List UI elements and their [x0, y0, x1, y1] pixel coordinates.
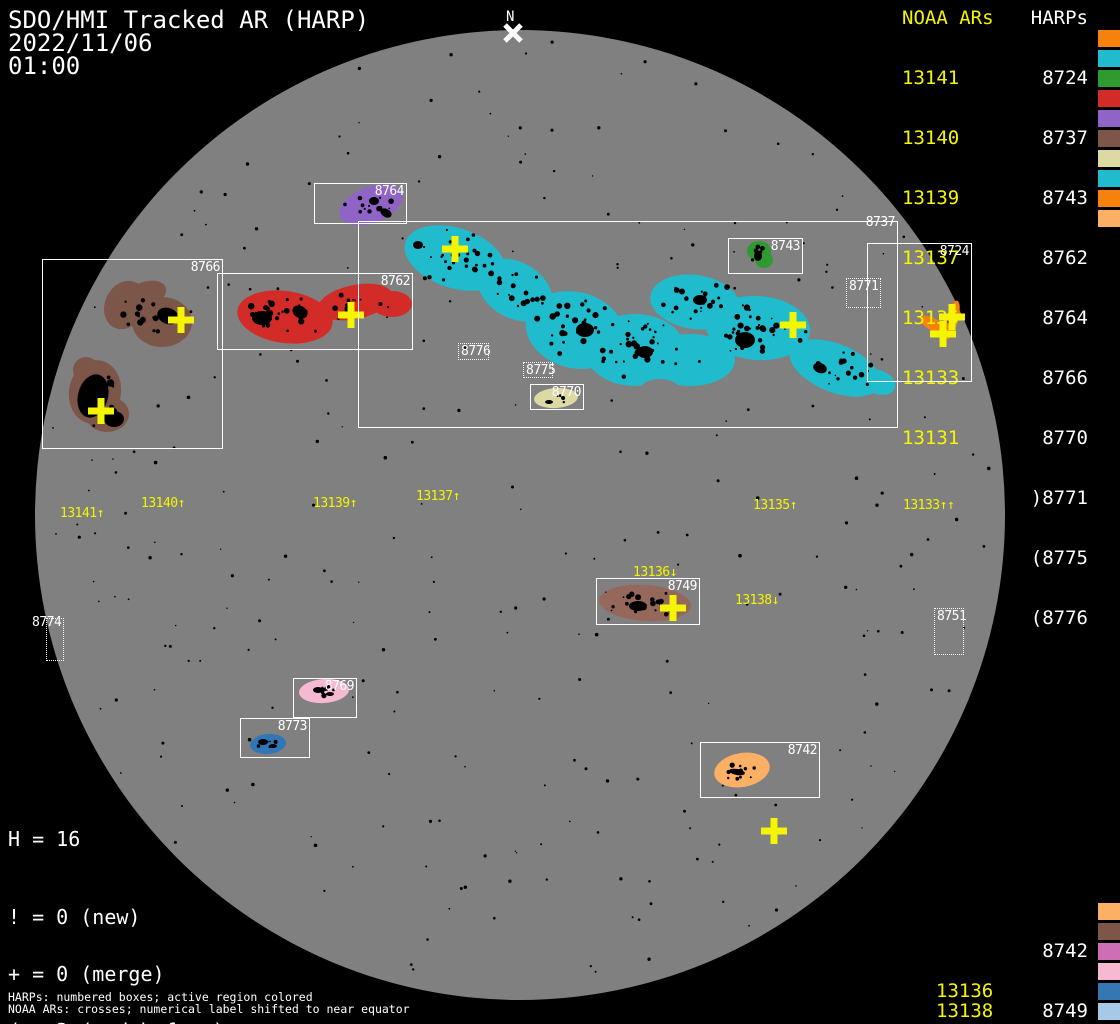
harp-box-8769: 8769: [293, 678, 357, 718]
harp-color-swatch: [1098, 983, 1120, 1000]
harp-color-swatch: [1098, 943, 1120, 960]
noaa-ar-number: 13138: [936, 1001, 993, 1021]
harp-box-8742: 8742: [700, 742, 820, 798]
harp-color-swatch: [1098, 210, 1120, 227]
noaa-disk-label: 13140↑: [141, 497, 185, 510]
harp-box-label: 8776: [461, 345, 490, 358]
solar-disk: [35, 30, 1005, 1000]
harp-box-8751: 8751: [934, 608, 964, 655]
harp-color-swatch: [1098, 50, 1120, 67]
harp-box-label: 8773: [278, 720, 307, 733]
harp-number: 8737: [968, 128, 1088, 148]
harp-box-8775: 8775: [523, 362, 553, 378]
harp-box-8766: 8766: [42, 259, 223, 449]
harp-box-label: 8751: [937, 610, 966, 623]
harp-count: H = 16: [8, 830, 80, 849]
noaa-ar-number: 13136: [936, 981, 993, 1001]
harp-box-label: 8770: [552, 386, 581, 399]
harp-tracking-visualization: SDO/HMI Tracked AR (HARP) 2022/11/06 01:…: [0, 0, 1120, 1024]
harp-list-top: 8724 8737 8743 8762 8764 8766 8770 )8771…: [968, 28, 1088, 668]
harp-box-label: 8775: [526, 364, 555, 377]
harp-number: 8762: [968, 248, 1088, 268]
harps-column-header: HARPs: [968, 10, 1088, 27]
harp-color-swatch: [1098, 30, 1120, 47]
harp-color-swatch: [1098, 70, 1120, 87]
harp-box-8764: 8764: [314, 183, 407, 224]
harp-box-8749: 8749: [596, 578, 700, 625]
harp-box-label: 8771: [849, 280, 878, 293]
noaa-disk-label: 13141↑: [60, 507, 104, 520]
harp-box-label: 8749: [668, 580, 697, 593]
harp-number: 8742: [968, 941, 1088, 961]
harp-color-swatch: [1098, 1003, 1120, 1020]
harp-box-8773: 8773: [240, 718, 310, 758]
harp-box-label: 8774: [32, 616, 61, 629]
harp-box-8774: 8774: [46, 618, 64, 661]
noaa-ar-number: 13141: [902, 68, 959, 88]
legend-item-merge: + = 0 (merge): [8, 965, 237, 984]
harp-color-swatch: [1098, 903, 1120, 920]
harp-color-swatch: [1098, 190, 1120, 207]
harp-number: 8764: [968, 308, 1088, 328]
harp-number: 8770: [968, 428, 1088, 448]
north-pole-label: N: [506, 10, 514, 24]
legend-item-new: ! = 0 (new): [8, 908, 237, 927]
harp-color-swatch: [1098, 110, 1120, 127]
harp-box-8743: 8743: [728, 238, 803, 274]
harp-box-8737: 8737: [358, 221, 898, 428]
harp-number: (8775: [968, 548, 1088, 568]
harp-box-label: 8769: [325, 680, 354, 693]
harp-box-label: 8766: [191, 261, 220, 274]
footnote-noaa: NOAA ARs: crosses; numerical label shift…: [8, 1003, 410, 1015]
noaa-ar-number: 13139: [902, 188, 959, 208]
noaa-disk-label: 13133↑↑: [903, 499, 954, 512]
harp-color-swatch: [1098, 170, 1120, 187]
harp-box-8771: 8771: [846, 278, 881, 308]
noaa-disk-label: 13138↓: [735, 594, 779, 607]
observation-time: 01:00: [8, 55, 80, 78]
harp-box-label: 8764: [375, 185, 404, 198]
harp-number: 8766: [968, 368, 1088, 388]
harp-box-8770: 8770: [530, 384, 584, 410]
noaa-disk-label: 13135↑: [753, 499, 797, 512]
harp-color-swatch: [1098, 90, 1120, 107]
harp-number: 8724: [968, 68, 1088, 88]
harp-box-label: 8742: [788, 744, 817, 757]
harp-number: (8776: [968, 608, 1088, 628]
harp-box-label: 8743: [771, 240, 800, 253]
harp-color-swatch: [1098, 963, 1120, 980]
noaa-ar-number: 13140: [902, 128, 959, 148]
harp-box-8724: 8724: [867, 243, 972, 382]
noaa-disk-label: 13139↑: [313, 497, 357, 510]
harp-box-label: 8737: [866, 216, 895, 229]
harp-box-8776: 8776: [458, 343, 489, 360]
harp-box-label: 8724: [940, 245, 969, 258]
noaa-disk-label: 13136↓: [633, 566, 677, 579]
harp-number: 8743: [968, 188, 1088, 208]
noaa-disk-label: 13137↑: [416, 490, 460, 503]
harp-color-swatch: [1098, 150, 1120, 167]
noaa-ar-number: 13131: [902, 428, 959, 448]
harp-color-swatch: [1098, 130, 1120, 147]
harp-color-swatch: [1098, 923, 1120, 940]
harp-number: )8771: [968, 488, 1088, 508]
